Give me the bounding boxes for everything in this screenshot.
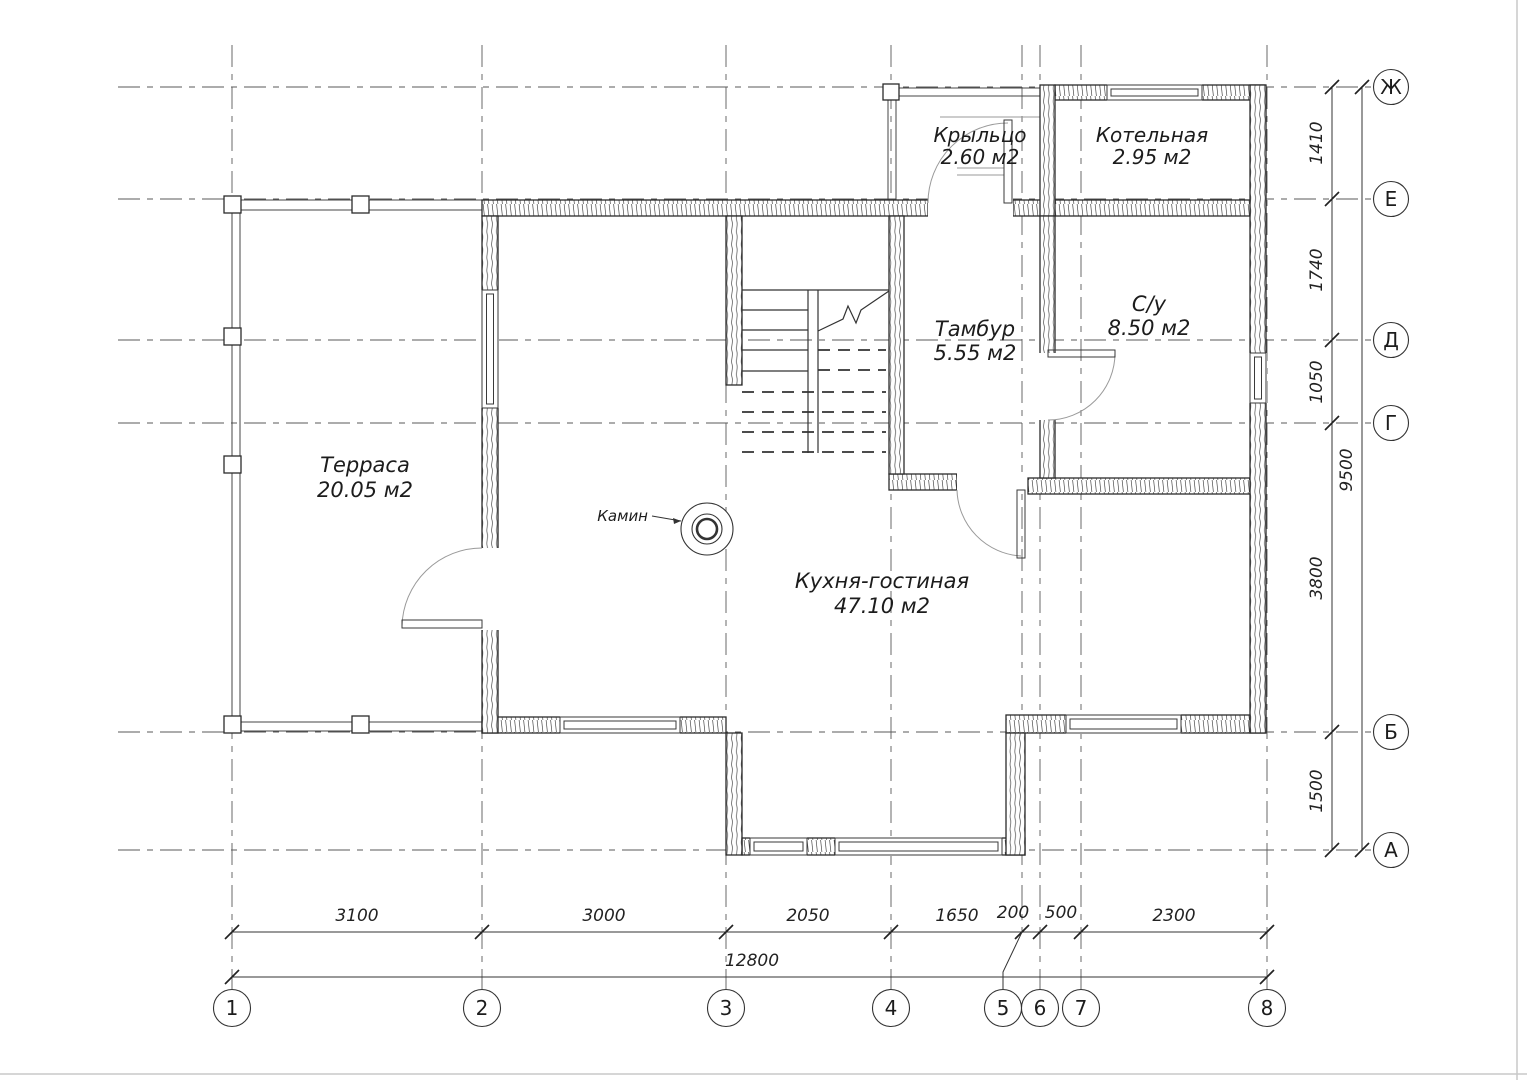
dim-bottom-2: 3000 [582, 906, 625, 926]
label-terrace-name: Терраса [320, 453, 410, 477]
window-boiler-top [1107, 84, 1202, 101]
label-boiler-name: Котельная [1096, 123, 1208, 147]
axis-row-a: А [1384, 838, 1398, 862]
axis-col-7: 7 [1075, 996, 1088, 1020]
dim-right-2: 1740 [1307, 248, 1327, 291]
label-tambour-area: 5.55 м2 [934, 341, 1017, 365]
dim-bottom-7: 2300 [1152, 906, 1195, 926]
window-west [481, 290, 499, 408]
dim-bottom-3: 2050 [786, 906, 829, 926]
label-kitchen-name: Кухня-гостиная [795, 569, 969, 593]
axis-row-d: Д [1383, 328, 1399, 352]
window-east [1249, 353, 1267, 403]
dim-right-1: 1410 [1307, 121, 1327, 164]
dim-bottom-5: 200 [997, 903, 1029, 923]
window-bay-2 [835, 837, 1002, 856]
wall-bay-right [1006, 733, 1025, 855]
wall-tambour-bottom [889, 474, 957, 490]
window-south-right [1066, 714, 1181, 734]
axis-col-4: 4 [885, 996, 898, 1020]
wall-north-left [482, 200, 928, 216]
axis-row-g: Г [1385, 411, 1397, 435]
dim-bottom-1: 3100 [335, 906, 378, 926]
label-bathroom-name: С/у [1132, 292, 1167, 316]
label-fireplace: Камин [597, 507, 648, 525]
dim-bottom-total: 12800 [725, 951, 779, 971]
wall-porch-boiler-divider [1040, 85, 1055, 216]
dim-bottom-6: 500 [1045, 903, 1077, 923]
label-tambour-name: Тамбур [935, 317, 1015, 341]
label-terrace-area: 20.05 м2 [317, 478, 413, 502]
dim-right-5: 1500 [1307, 769, 1327, 812]
axis-row-e: Е [1385, 187, 1398, 211]
label-boiler-area: 2.95 м2 [1113, 145, 1192, 169]
label-porch-area: 2.60 м2 [941, 145, 1020, 169]
axis-col-6: 6 [1034, 996, 1047, 1020]
floor-plan-page: 3100 3000 2050 1650 200 500 2300 12800 1… [0, 0, 1527, 1080]
wall-east [1250, 85, 1266, 733]
wall-bay-left [726, 733, 742, 855]
wall-tambour-bathroom-divider [1040, 216, 1055, 478]
label-bathroom-area: 8.50 м2 [1108, 316, 1191, 340]
axis-row-zh: Ж [1380, 75, 1402, 99]
axis-col-5: 5 [997, 996, 1010, 1020]
wall-bathroom-bottom [1028, 478, 1265, 494]
axis-col-2: 2 [476, 996, 489, 1020]
wall-stairs-left [726, 216, 742, 385]
wall-stairs-right [889, 216, 904, 474]
canvas-background [0, 0, 1527, 1080]
label-porch-name: Крыльцо [933, 123, 1026, 147]
axis-col-3: 3 [720, 996, 733, 1020]
dim-right-4: 3800 [1307, 556, 1327, 599]
dim-right-total: 9500 [1337, 448, 1357, 491]
window-south-left [560, 716, 680, 734]
dim-bottom-4: 1650 [935, 906, 978, 926]
floor-plan-drawing: 3100 3000 2050 1650 200 500 2300 12800 1… [0, 0, 1527, 1080]
window-bay-1 [750, 837, 807, 856]
axis-row-b: Б [1384, 720, 1398, 744]
axis-col-8: 8 [1261, 996, 1274, 1020]
label-kitchen-area: 47.10 м2 [834, 594, 930, 618]
axis-col-1: 1 [226, 996, 239, 1020]
dim-right-3: 1050 [1307, 360, 1327, 403]
